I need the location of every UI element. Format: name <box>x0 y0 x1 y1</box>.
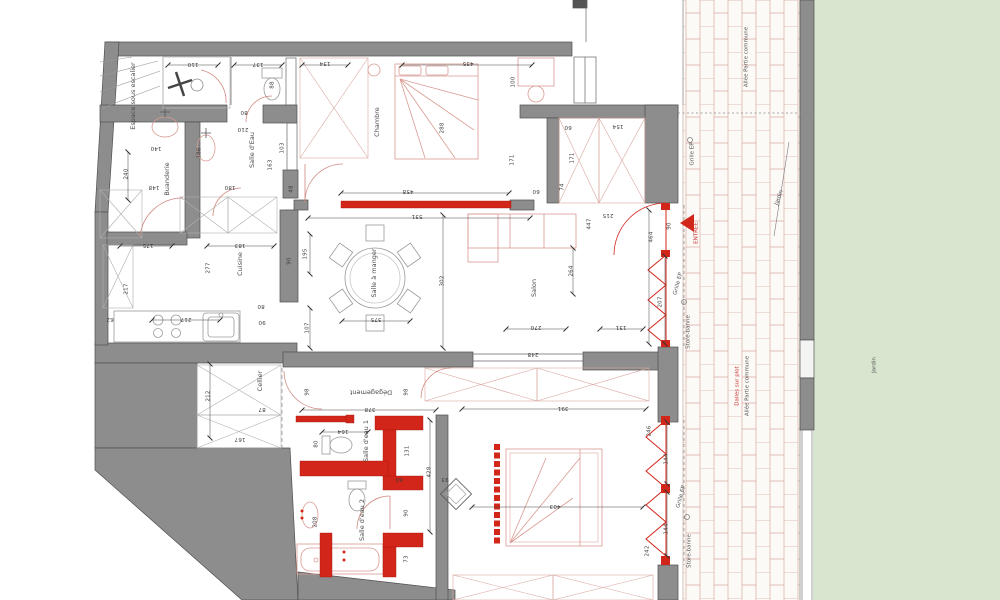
paving-area <box>683 0 800 600</box>
garden-area <box>813 0 1000 600</box>
floor-plan-page: Espace sous escalierSalle d'EauBuanderie… <box>0 0 1000 600</box>
floor-plan-drawing <box>0 0 1000 600</box>
